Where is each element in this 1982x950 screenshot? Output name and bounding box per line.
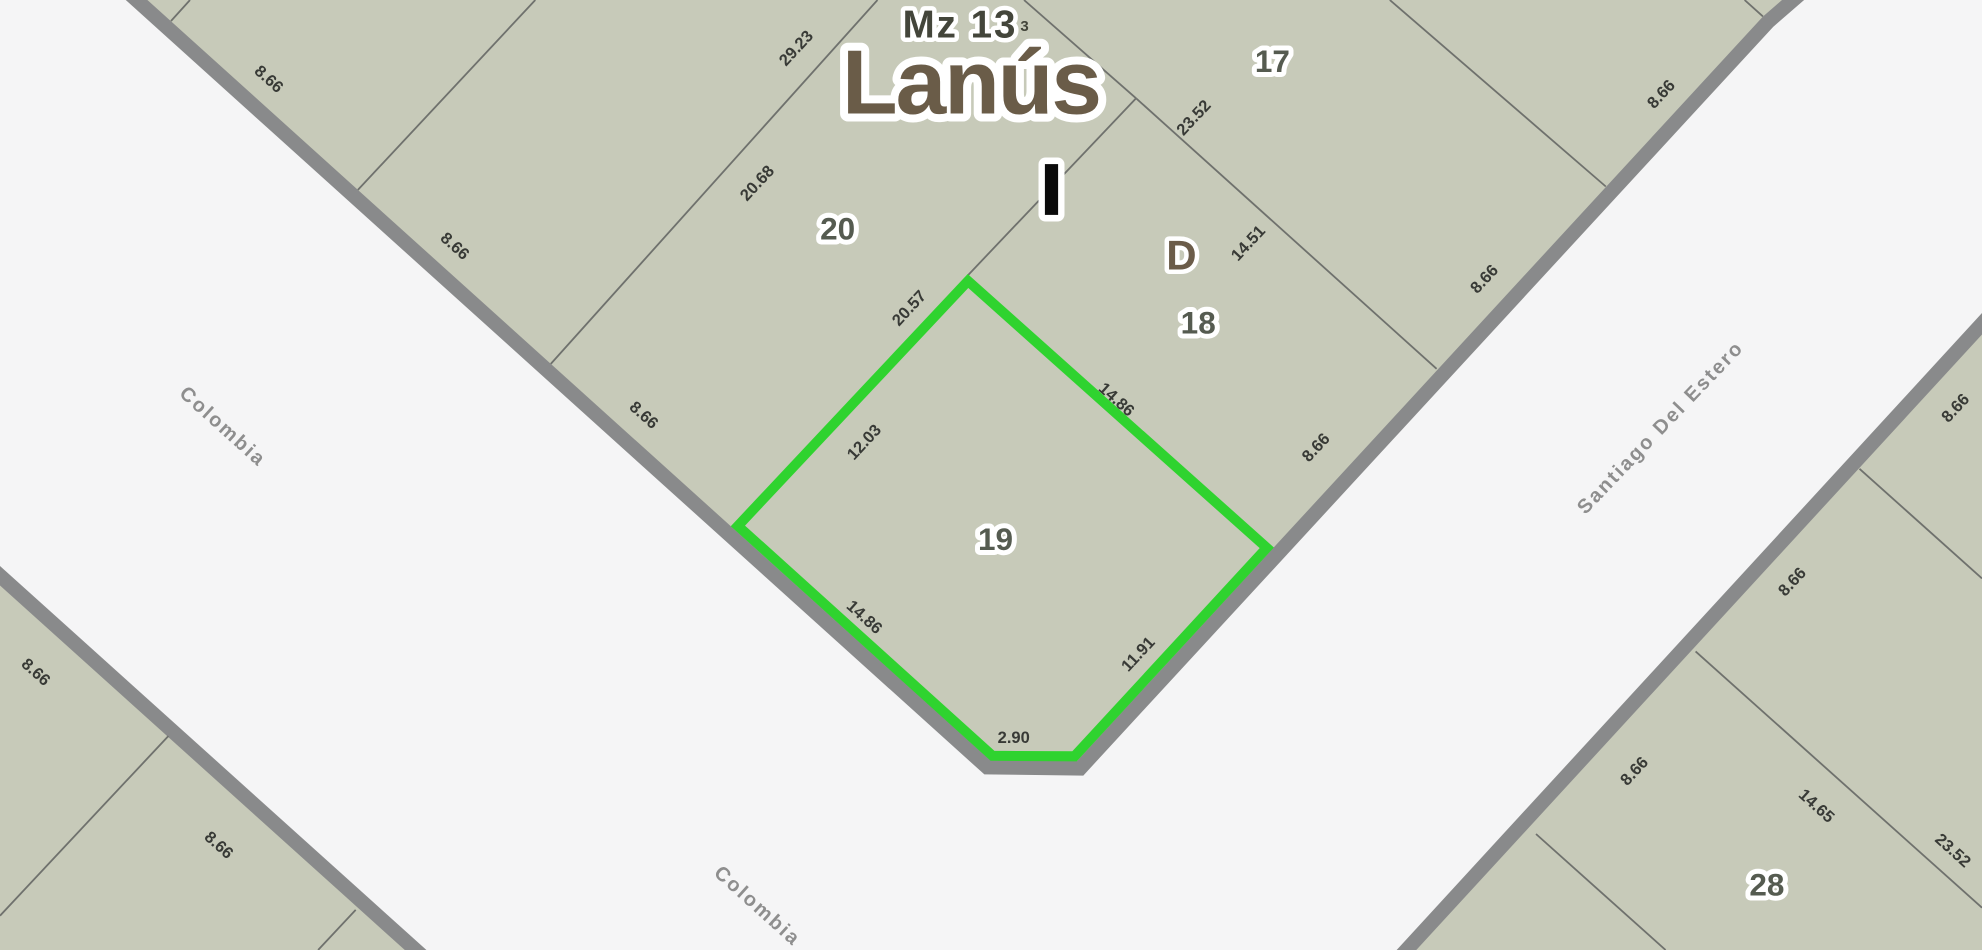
svg-text:18: 18	[1181, 305, 1216, 341]
svg-text:20: 20	[820, 211, 855, 247]
svg-text:Lanús: Lanús	[842, 33, 1100, 134]
svg-text:28: 28	[1749, 867, 1784, 903]
svg-text:D: D	[1166, 232, 1196, 279]
svg-text:17: 17	[1255, 43, 1290, 79]
svg-text:2.90: 2.90	[998, 729, 1030, 747]
svg-text:19: 19	[978, 521, 1013, 557]
